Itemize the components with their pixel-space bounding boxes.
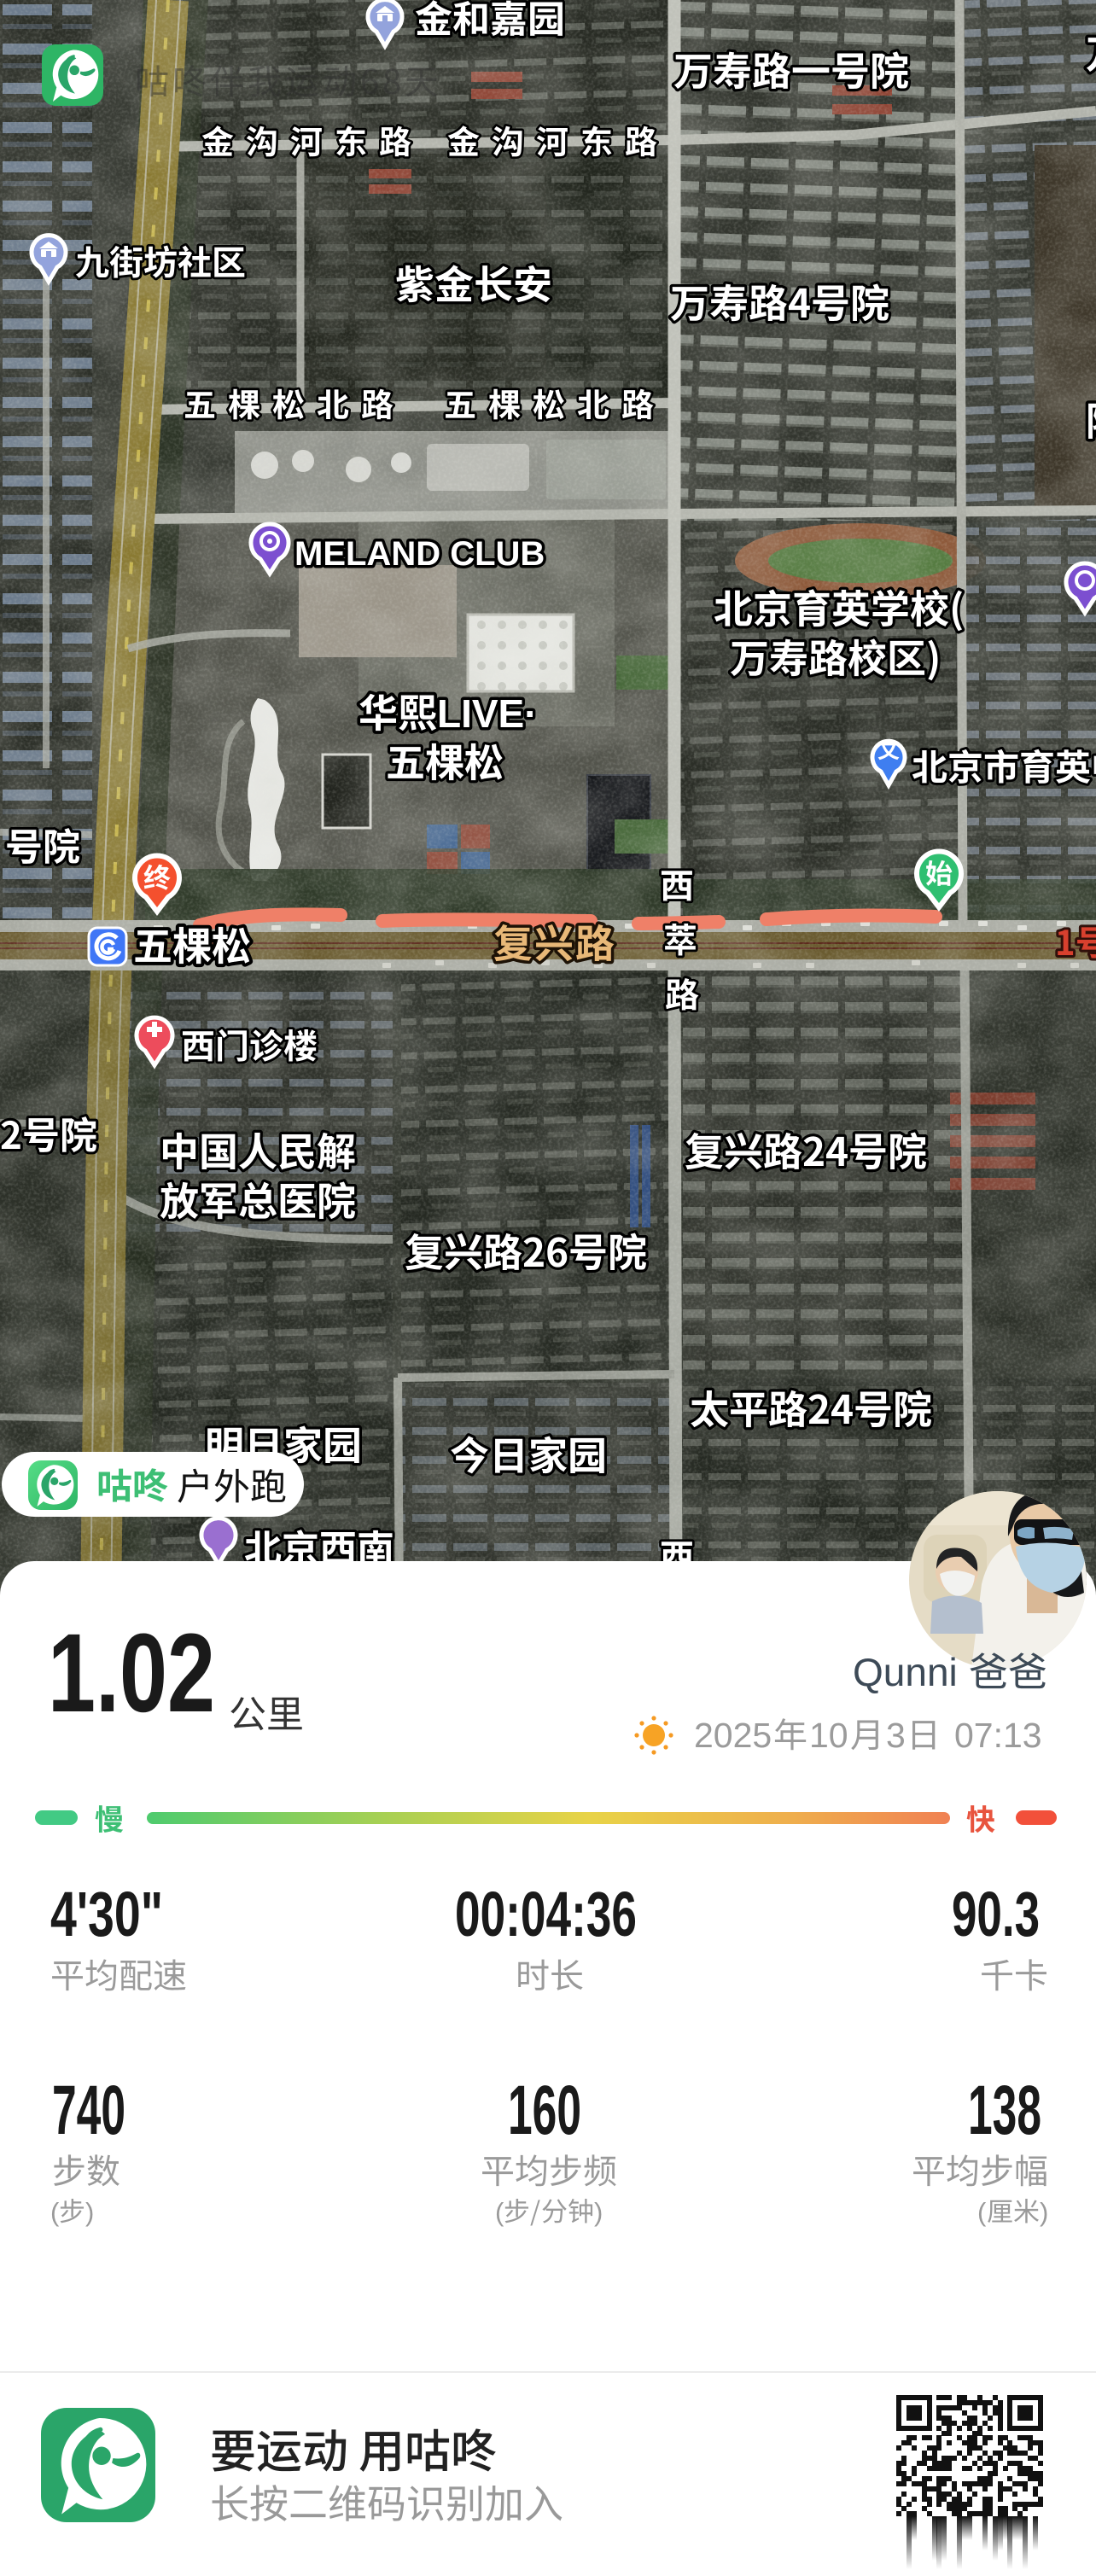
svg-text:90.3: 90.3 [952, 1879, 1040, 1949]
svg-text:10: 10 [809, 1716, 848, 1755]
svg-text:4'30": 4'30" [50, 1879, 163, 1949]
svg-text:MELAND CLUB: MELAND CLUB [294, 535, 545, 573]
svg-text:138: 138 [968, 2072, 1041, 2149]
svg-text:160: 160 [508, 2072, 581, 2149]
svg-text:740: 740 [52, 2072, 125, 2149]
svg-text:): ) [1040, 2197, 1048, 2227]
svg-text:07:13: 07:13 [954, 1716, 1042, 1755]
svg-text:): ) [85, 2197, 94, 2227]
svg-text:Qunni: Qunni [853, 1650, 958, 1694]
svg-text:1.02: 1.02 [48, 1610, 215, 1735]
svg-text:(: ( [977, 2197, 987, 2227]
svg-text:00:04:36: 00:04:36 [455, 1879, 637, 1949]
svg-text:(: ( [50, 2197, 60, 2227]
svg-text:): ) [594, 2197, 603, 2227]
svg-text:(: ( [495, 2197, 504, 2227]
svg-text:LIVE·: LIVE· [437, 691, 538, 736]
svg-text:3: 3 [886, 1716, 906, 1755]
svg-text:2025: 2025 [694, 1716, 772, 1755]
